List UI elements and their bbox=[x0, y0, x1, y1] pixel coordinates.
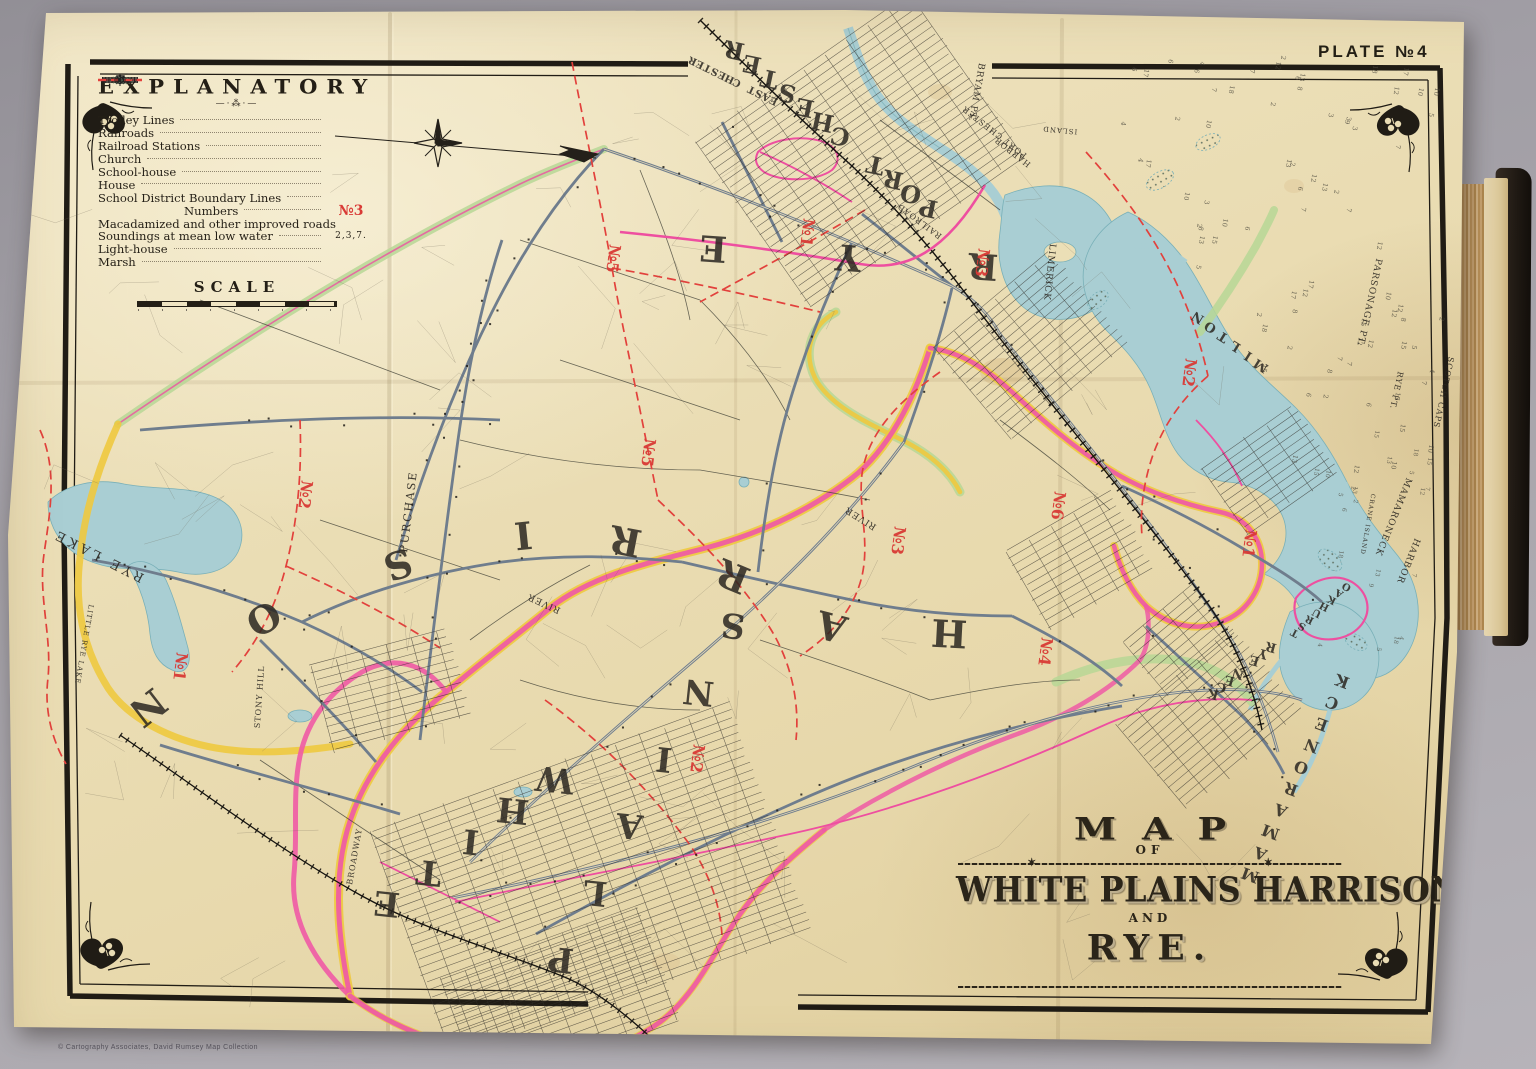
svg-text:7: 7 bbox=[1299, 207, 1308, 212]
svg-text:12: 12 bbox=[1396, 303, 1405, 313]
svg-text:15: 15 bbox=[1260, 364, 1269, 374]
legend-leader-dots bbox=[279, 234, 321, 236]
svg-text:15: 15 bbox=[1210, 235, 1219, 245]
svg-text:N: N bbox=[681, 670, 716, 713]
soundings-text-icon: 2,3,7. bbox=[326, 230, 376, 242]
red-dashes-icon bbox=[326, 192, 376, 204]
svg-text:13: 13 bbox=[1350, 486, 1358, 495]
legend-item-label: Church bbox=[98, 152, 141, 165]
legend-item-label: Numbers bbox=[184, 204, 238, 217]
railroad-line-icon bbox=[326, 127, 376, 139]
svg-text:T: T bbox=[758, 63, 782, 95]
map-artwork: 1712612315151821321215725131017662159826… bbox=[0, 0, 1536, 1069]
svg-text:E: E bbox=[740, 49, 764, 81]
svg-text:18: 18 bbox=[1260, 323, 1269, 333]
svg-text:13: 13 bbox=[1373, 568, 1381, 577]
svg-text:RYE PT.: RYE PT. bbox=[1388, 371, 1405, 411]
svg-text:SCOTCH CAPS: SCOTCH CAPS bbox=[1431, 356, 1455, 429]
svg-text:18: 18 bbox=[1411, 448, 1419, 457]
church-cross-icon bbox=[326, 153, 376, 165]
place-labels: RYEPORTCHESTEREASTCHESTERWHITEPLAINSMAMA… bbox=[50, 34, 1455, 980]
svg-text:BRYAM PT.: BRYAM PT. bbox=[966, 62, 986, 122]
cartouche-main-title: WHITE PLAINS HARRISON bbox=[956, 869, 1344, 910]
svg-text:T: T bbox=[746, 83, 758, 96]
svg-text:18: 18 bbox=[1227, 85, 1236, 95]
legend-item-label: Macadamized and other improved roads bbox=[98, 217, 336, 230]
svg-text:E: E bbox=[1248, 651, 1262, 668]
svg-text:18: 18 bbox=[1370, 65, 1379, 75]
plate-number: PLATE №4 bbox=[1318, 43, 1430, 62]
svg-text:2: 2 bbox=[1285, 345, 1294, 350]
svg-text:4: 4 bbox=[1397, 636, 1405, 641]
map-sheet: 1712612315151821321215725131017662159826… bbox=[0, 0, 1536, 1069]
cartouche-rye-word: RYE. bbox=[950, 928, 1350, 968]
svg-text:№5: №5 bbox=[602, 243, 624, 274]
svg-text:H: H bbox=[723, 71, 736, 85]
svg-text:LITTLE RYE LAKE: LITTLE RYE LAKE bbox=[73, 604, 95, 685]
boundary-ribbons bbox=[78, 138, 1367, 1057]
legend-item: Trolley Lines bbox=[98, 114, 376, 127]
urban-street-grids bbox=[308, 0, 1341, 1069]
fold-creases bbox=[10, 12, 1458, 1040]
svg-text:12: 12 bbox=[1366, 339, 1375, 349]
svg-text:A: A bbox=[1271, 799, 1291, 822]
svg-text:RAILROAD: RAILROAD bbox=[896, 201, 944, 240]
svg-text:7: 7 bbox=[1410, 573, 1418, 578]
svg-text:12: 12 bbox=[1301, 288, 1310, 298]
legend-leader-dots bbox=[287, 195, 321, 197]
svg-text:PARSONAGE PT.: PARSONAGE PT. bbox=[1355, 258, 1383, 348]
svg-text:R: R bbox=[720, 34, 747, 67]
svg-text:10: 10 bbox=[1204, 119, 1213, 129]
svg-text:6: 6 bbox=[1243, 226, 1252, 231]
svg-text:3: 3 bbox=[1202, 200, 1211, 205]
legend-leader-dots bbox=[142, 260, 321, 262]
svg-text:13: 13 bbox=[1298, 73, 1307, 83]
svg-text:O: O bbox=[897, 178, 923, 211]
svg-text:2: 2 bbox=[1279, 55, 1288, 60]
legend-leader-dots bbox=[147, 157, 321, 159]
svg-text:10: 10 bbox=[1426, 444, 1435, 454]
svg-text:9: 9 bbox=[1367, 583, 1375, 588]
svg-text:N: N bbox=[1189, 307, 1207, 326]
svg-text:8: 8 bbox=[1295, 86, 1304, 91]
svg-text:17: 17 bbox=[1144, 159, 1153, 169]
svg-text:№2: №2 bbox=[294, 479, 316, 510]
legend-item: Soundings at mean low water2,3,7. bbox=[98, 230, 376, 243]
svg-text:12: 12 bbox=[1355, 336, 1364, 346]
svg-text:T: T bbox=[1289, 625, 1301, 638]
svg-text:E: E bbox=[698, 226, 728, 270]
svg-text:17: 17 bbox=[1401, 67, 1410, 77]
svg-text:E: E bbox=[793, 92, 817, 124]
svg-text:5: 5 bbox=[1408, 470, 1416, 475]
svg-text:E: E bbox=[1313, 713, 1331, 735]
svg-text:7: 7 bbox=[1420, 380, 1429, 385]
paper-stains bbox=[652, 84, 1304, 971]
svg-text:7: 7 bbox=[1394, 144, 1403, 149]
svg-text:T: T bbox=[701, 61, 713, 74]
svg-text:12: 12 bbox=[1375, 241, 1384, 251]
svg-text:5: 5 bbox=[1194, 264, 1203, 269]
legend-item-label: Light-house bbox=[98, 243, 168, 256]
svg-text:10: 10 bbox=[1384, 291, 1393, 301]
svg-text:15: 15 bbox=[1312, 467, 1320, 476]
svg-text:12: 12 bbox=[1390, 309, 1399, 319]
svg-text:N: N bbox=[121, 679, 176, 736]
legend-item: Railroad Stations bbox=[98, 140, 376, 153]
svg-text:R: R bbox=[709, 549, 756, 603]
svg-text:8: 8 bbox=[1325, 368, 1334, 373]
svg-text:HARBOR: HARBOR bbox=[1394, 537, 1421, 585]
svg-text:12: 12 bbox=[1352, 464, 1361, 474]
svg-text:L: L bbox=[581, 871, 609, 913]
parcel-lines bbox=[18, 88, 1298, 1017]
svg-text:12: 12 bbox=[1273, 61, 1282, 71]
water-features bbox=[48, 28, 1418, 797]
svg-text:H: H bbox=[930, 610, 968, 657]
legend-item: Railroads bbox=[98, 127, 376, 140]
svg-text:8: 8 bbox=[1290, 308, 1299, 313]
svg-text:C: C bbox=[828, 120, 853, 152]
svg-text:15: 15 bbox=[1359, 317, 1368, 327]
svg-text:5: 5 bbox=[1410, 345, 1419, 350]
map-border-frame bbox=[64, 62, 1447, 1012]
svg-text:6: 6 bbox=[1293, 75, 1302, 80]
svg-text:K: K bbox=[1325, 592, 1338, 606]
svg-text:CRANE ISLAND: CRANE ISLAND bbox=[1359, 493, 1377, 555]
svg-text:L: L bbox=[1228, 337, 1244, 355]
svg-text:S: S bbox=[1297, 619, 1308, 632]
svg-text:7: 7 bbox=[1248, 69, 1257, 74]
svg-text:C: C bbox=[1214, 678, 1228, 695]
legend-leader-dots bbox=[244, 208, 321, 210]
cartouche-rule-bottom bbox=[958, 983, 1342, 990]
svg-text:S: S bbox=[709, 65, 720, 78]
svg-text:PORT CHESTER: PORT CHESTER bbox=[960, 104, 1028, 160]
svg-text:STONY HILL: STONY HILL bbox=[253, 665, 266, 728]
legend-item: Numbers№3 bbox=[98, 204, 376, 217]
legend-item: Light-house bbox=[98, 243, 376, 256]
svg-text:M: M bbox=[1251, 355, 1271, 375]
svg-text:10: 10 bbox=[1389, 461, 1398, 471]
svg-text:18: 18 bbox=[1392, 636, 1400, 645]
compass-rose-icon bbox=[335, 119, 598, 167]
svg-text:BROADWAY: BROADWAY bbox=[345, 828, 364, 886]
scale-title: SCALE bbox=[98, 278, 376, 296]
svg-text:A: A bbox=[614, 804, 646, 847]
svg-text:9: 9 bbox=[1343, 119, 1352, 124]
svg-text:O: O bbox=[238, 591, 289, 646]
svg-text:M: M bbox=[1259, 820, 1282, 844]
legend-item: Macadamized and other improved roads bbox=[98, 217, 376, 230]
legend-leader-dots bbox=[206, 144, 321, 146]
legend-panel: EXPLANATORY —·⁂·— Trolley LinesRailroads… bbox=[98, 74, 376, 307]
svg-text:№3: №3 bbox=[971, 247, 993, 278]
svg-text:12: 12 bbox=[1418, 487, 1426, 496]
legend-item: House bbox=[98, 178, 376, 191]
svg-text:6: 6 bbox=[1130, 67, 1139, 72]
svg-text:10: 10 bbox=[1432, 87, 1441, 97]
legend-item-label: School-house bbox=[98, 165, 176, 178]
svg-text:RYE LAKE: RYE LAKE bbox=[50, 526, 147, 585]
svg-text:5: 5 bbox=[1427, 112, 1436, 117]
svg-text:7: 7 bbox=[1210, 87, 1219, 92]
soundings-numbers: 1712612315151821321215725131017662159826… bbox=[1119, 55, 1446, 652]
svg-text:№3: №3 bbox=[887, 525, 909, 556]
house-dots bbox=[98, 126, 1314, 928]
legend-item-label: House bbox=[98, 178, 135, 191]
svg-text:2: 2 bbox=[1321, 394, 1330, 399]
svg-text:4: 4 bbox=[1428, 368, 1437, 373]
house-dot-icon bbox=[326, 179, 376, 191]
svg-text:4: 4 bbox=[1316, 643, 1324, 648]
svg-text:12: 12 bbox=[1309, 173, 1318, 183]
svg-text:A: A bbox=[811, 601, 852, 652]
svg-text:H: H bbox=[808, 106, 836, 139]
svg-text:№1: №1 bbox=[796, 217, 818, 248]
railroads bbox=[120, 20, 1262, 1058]
svg-text:17: 17 bbox=[1393, 391, 1402, 401]
svg-text:10: 10 bbox=[1416, 87, 1425, 97]
cartouche-of-word: OF bbox=[950, 843, 1350, 857]
svg-text:E: E bbox=[372, 882, 402, 924]
legend-leader-dots bbox=[182, 170, 321, 172]
svg-text:H: H bbox=[495, 788, 531, 831]
svg-text:HARBOR: HARBOR bbox=[993, 135, 1033, 169]
svg-text:K: K bbox=[1205, 684, 1220, 702]
svg-text:Y: Y bbox=[833, 235, 864, 279]
svg-text:LIMERICK: LIMERICK bbox=[1041, 243, 1057, 301]
svg-text:2: 2 bbox=[1352, 499, 1360, 504]
trolley-lines bbox=[380, 152, 1252, 922]
svg-text:RIVER: RIVER bbox=[843, 504, 878, 531]
svg-text:7: 7 bbox=[1335, 356, 1344, 361]
svg-text:6: 6 bbox=[1304, 392, 1313, 397]
macadam-line-icon bbox=[347, 218, 376, 230]
major-roads bbox=[92, 122, 1322, 934]
svg-text:N: N bbox=[1230, 664, 1245, 682]
svg-text:№2: №2 bbox=[1178, 357, 1200, 388]
svg-text:S: S bbox=[719, 604, 748, 646]
svg-text:T: T bbox=[414, 851, 443, 893]
svg-text:7: 7 bbox=[1423, 486, 1431, 491]
svg-text:P: P bbox=[916, 192, 940, 224]
district-numbers: №5№2№5№1№3№2№4№6№3№1№2№1 bbox=[169, 217, 1260, 774]
svg-text:S: S bbox=[378, 539, 418, 590]
svg-text:15: 15 bbox=[1425, 457, 1433, 466]
svg-text:U: U bbox=[1311, 606, 1324, 620]
svg-text:№6: №6 bbox=[1047, 490, 1069, 521]
svg-text:R: R bbox=[879, 163, 906, 196]
svg-text:I: I bbox=[512, 512, 534, 559]
svg-text:R: R bbox=[1264, 638, 1279, 655]
svg-text:6: 6 bbox=[1340, 507, 1348, 512]
lighthouse-star-icon bbox=[326, 243, 376, 255]
scale-bar bbox=[137, 301, 337, 307]
svg-text:6: 6 bbox=[1296, 186, 1305, 191]
svg-text:2: 2 bbox=[1255, 312, 1264, 317]
cartouche-rule-top: ✶✶ bbox=[958, 860, 1342, 867]
legend-item-label: Soundings at mean low water bbox=[98, 230, 273, 243]
svg-text:15: 15 bbox=[1399, 340, 1408, 350]
svg-text:4: 4 bbox=[1119, 121, 1128, 126]
svg-text:S: S bbox=[776, 77, 799, 109]
svg-text:5: 5 bbox=[1375, 647, 1383, 652]
svg-text:E: E bbox=[768, 94, 780, 107]
svg-text:3: 3 bbox=[1326, 113, 1335, 118]
svg-text:M: M bbox=[1239, 863, 1262, 887]
svg-text:E: E bbox=[1223, 671, 1237, 688]
svg-text:N: N bbox=[1301, 734, 1321, 757]
svg-text:T: T bbox=[863, 149, 887, 181]
svg-text:3: 3 bbox=[1350, 126, 1359, 131]
svg-text:17: 17 bbox=[1306, 280, 1315, 290]
legend-flourish-ornament: —·⁂·— bbox=[98, 100, 376, 108]
legend-title: EXPLANATORY bbox=[98, 75, 376, 98]
svg-text:10: 10 bbox=[1182, 191, 1191, 201]
svg-text:A: A bbox=[1333, 586, 1346, 600]
svg-text:2: 2 bbox=[1332, 189, 1341, 194]
svg-text:2: 2 bbox=[1269, 101, 1278, 106]
school-rect-icon bbox=[326, 166, 376, 178]
district-boundaries bbox=[40, 62, 1208, 935]
svg-text:K: K bbox=[1331, 669, 1352, 692]
svg-text:8: 8 bbox=[1196, 226, 1205, 231]
svg-text:10: 10 bbox=[1220, 218, 1229, 228]
svg-text:№5: №5 bbox=[637, 437, 659, 468]
svg-text:13: 13 bbox=[1290, 454, 1299, 464]
svg-text:2: 2 bbox=[1173, 116, 1182, 121]
svg-text:O: O bbox=[1202, 317, 1220, 336]
legend-item: School-house bbox=[98, 166, 376, 179]
svg-text:5: 5 bbox=[1336, 492, 1344, 497]
svg-text:C: C bbox=[1323, 692, 1341, 714]
svg-text:O: O bbox=[1340, 579, 1353, 593]
title-cartouche: MAP OF ✶✶ WHITE PLAINS HARRISON AND RYE. bbox=[950, 806, 1350, 993]
svg-text:2: 2 bbox=[1288, 162, 1297, 167]
svg-text:Y: Y bbox=[1256, 644, 1271, 661]
svg-text:P: P bbox=[546, 938, 576, 980]
svg-text:7: 7 bbox=[1345, 361, 1354, 366]
svg-text:I: I bbox=[654, 738, 674, 779]
svg-text:A: A bbox=[761, 90, 774, 104]
legend-item: School District Boundary Lines bbox=[98, 191, 376, 204]
svg-text:17: 17 bbox=[1141, 68, 1150, 78]
svg-text:MAMARONECK: MAMARONECK bbox=[1373, 476, 1414, 557]
svg-text:6: 6 bbox=[1364, 402, 1373, 407]
svg-text:18: 18 bbox=[1336, 550, 1344, 559]
svg-text:15: 15 bbox=[1398, 423, 1407, 433]
cartouche-and-word: AND bbox=[950, 911, 1350, 925]
svg-text:17: 17 bbox=[1289, 290, 1298, 300]
district-number-icon: №3 bbox=[326, 205, 376, 217]
cartouche-map-word: MAP bbox=[950, 811, 1350, 847]
legend-item-label: Trolley Lines bbox=[98, 114, 174, 127]
svg-text:PURCHASE: PURCHASE bbox=[397, 470, 420, 553]
svg-text:12: 12 bbox=[1392, 86, 1401, 96]
svg-text:R: R bbox=[686, 53, 699, 67]
svg-text:8: 8 bbox=[1399, 317, 1408, 322]
legend-leader-dots bbox=[160, 131, 321, 133]
svg-text:4: 4 bbox=[1136, 158, 1145, 163]
collection-credit: © Cartography Associates, David Rumsey M… bbox=[58, 1044, 258, 1051]
svg-text:C: C bbox=[731, 75, 743, 88]
svg-text:6: 6 bbox=[1192, 68, 1201, 73]
svg-text:10: 10 bbox=[1324, 469, 1332, 478]
svg-text:T: T bbox=[1215, 327, 1231, 345]
svg-text:№2: №2 bbox=[686, 743, 708, 774]
svg-text:E: E bbox=[716, 68, 728, 81]
svg-text:2: 2 bbox=[1349, 486, 1357, 491]
svg-text:№1: №1 bbox=[1238, 528, 1260, 559]
legend-item-label: School District Boundary Lines bbox=[98, 191, 281, 204]
svg-text:ISLAND: ISLAND bbox=[1042, 124, 1078, 135]
legend-item-label: Marsh bbox=[98, 256, 136, 269]
svg-text:13: 13 bbox=[1284, 159, 1293, 169]
minor-roads bbox=[200, 120, 1110, 880]
svg-text:7: 7 bbox=[1344, 207, 1353, 212]
svg-text:O: O bbox=[1291, 756, 1311, 779]
svg-text:W: W bbox=[533, 757, 577, 801]
legend-leader-dots bbox=[180, 118, 321, 120]
svg-text:4: 4 bbox=[1198, 61, 1207, 66]
svg-text:S: S bbox=[754, 86, 765, 99]
svg-text:15: 15 bbox=[1372, 430, 1380, 439]
svg-text:I: I bbox=[461, 820, 481, 861]
svg-text:13: 13 bbox=[1197, 235, 1206, 245]
svg-text:R: R bbox=[605, 516, 645, 566]
svg-text:R: R bbox=[966, 244, 1000, 288]
svg-text:№1: №1 bbox=[169, 651, 191, 682]
marsh-glyph-icon bbox=[326, 256, 376, 268]
legend-item: Marsh bbox=[98, 256, 376, 269]
legend-item-label: Railroad Stations bbox=[98, 140, 200, 153]
svg-text:3: 3 bbox=[1344, 116, 1353, 121]
svg-text:RIVER: RIVER bbox=[526, 591, 562, 615]
svg-text:I: I bbox=[1242, 347, 1255, 363]
svg-text:E: E bbox=[694, 57, 706, 70]
svg-text:R: R bbox=[1281, 778, 1301, 801]
legend-leader-dots bbox=[174, 247, 321, 249]
station-square-icon bbox=[326, 140, 376, 152]
svg-text:13: 13 bbox=[1385, 456, 1393, 465]
map-sheet-wrap: 1712612315151821321215725131017662159826… bbox=[0, 0, 1536, 1069]
svg-text:13: 13 bbox=[1320, 182, 1329, 192]
svg-text:2: 2 bbox=[1195, 223, 1204, 228]
legend-leader-dots bbox=[141, 182, 321, 184]
legend-items: Trolley LinesRailroadsRailroad StationsC… bbox=[98, 114, 376, 269]
svg-text:№4: №4 bbox=[1034, 636, 1056, 667]
svg-text:6: 6 bbox=[1166, 59, 1175, 64]
svg-text:H: H bbox=[1318, 599, 1331, 613]
svg-text:A: A bbox=[1251, 842, 1271, 865]
trolley-line-icon bbox=[326, 114, 376, 126]
legend-item: Church bbox=[98, 153, 376, 166]
legend-item-label: Railroads bbox=[98, 127, 154, 140]
photo-of-atlas-plate: 1712612315151821321215725131017662159826… bbox=[0, 0, 1536, 1069]
svg-text:2: 2 bbox=[1437, 316, 1446, 321]
svg-text:R: R bbox=[1303, 612, 1316, 626]
